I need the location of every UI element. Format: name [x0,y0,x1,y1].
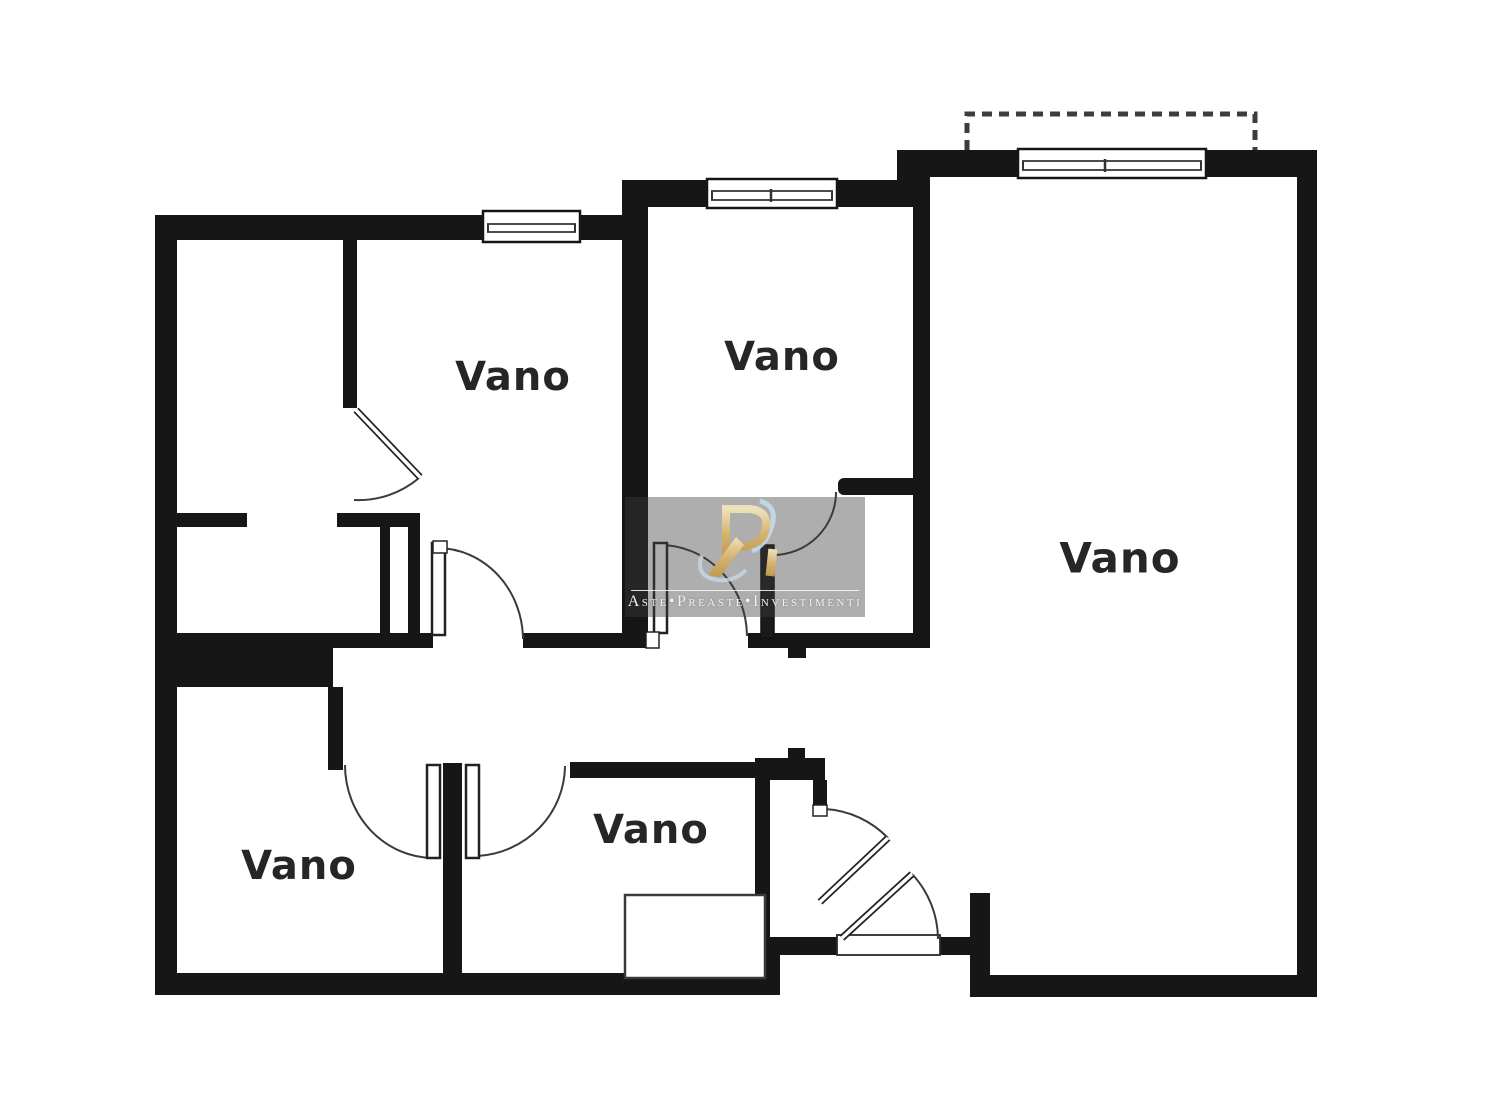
wall [570,762,770,778]
room-label-2: Vano [724,334,840,380]
wall [523,633,647,648]
agency-logo [690,497,800,583]
window [1018,149,1206,178]
wall [343,230,357,408]
wall [748,633,930,648]
room-label-1: Vano [455,354,571,400]
wall [328,687,343,770]
entrance-threshold [837,935,940,955]
door [345,765,440,858]
door [813,805,888,902]
wall-stub [788,748,805,760]
window [707,179,837,208]
wall [970,893,990,997]
door [466,765,565,858]
closet [625,895,765,978]
balcony-dashed-outline [967,114,1255,150]
wall [838,478,927,495]
wall [155,215,177,995]
room-label-3: Vano [1059,534,1180,583]
r-monogram-icon [708,509,777,577]
floorplan-page: Vano Vano Vano Vano Vano Aste•Pr [0,0,1500,1118]
watermark-text: Aste•Preaste•Investimenti [628,593,863,611]
room-label-4: Vano [241,843,357,889]
wall-stub [788,645,806,658]
wall [443,763,462,978]
door [354,410,420,500]
wall [755,758,825,780]
wall [168,643,333,687]
window [483,211,580,242]
room-label-5: Vano [593,807,709,853]
wall [337,513,420,527]
wall [913,177,930,645]
wall [940,937,973,955]
duct-wall [408,517,420,638]
wall [973,975,1317,997]
watermark: Aste•Preaste•Investimenti [625,497,865,617]
duct-wall [380,517,390,638]
watermark-divider [631,590,859,591]
wall-stub [813,780,827,805]
wall [173,513,247,527]
door [842,874,938,939]
door [432,541,523,639]
wall [1297,150,1317,997]
